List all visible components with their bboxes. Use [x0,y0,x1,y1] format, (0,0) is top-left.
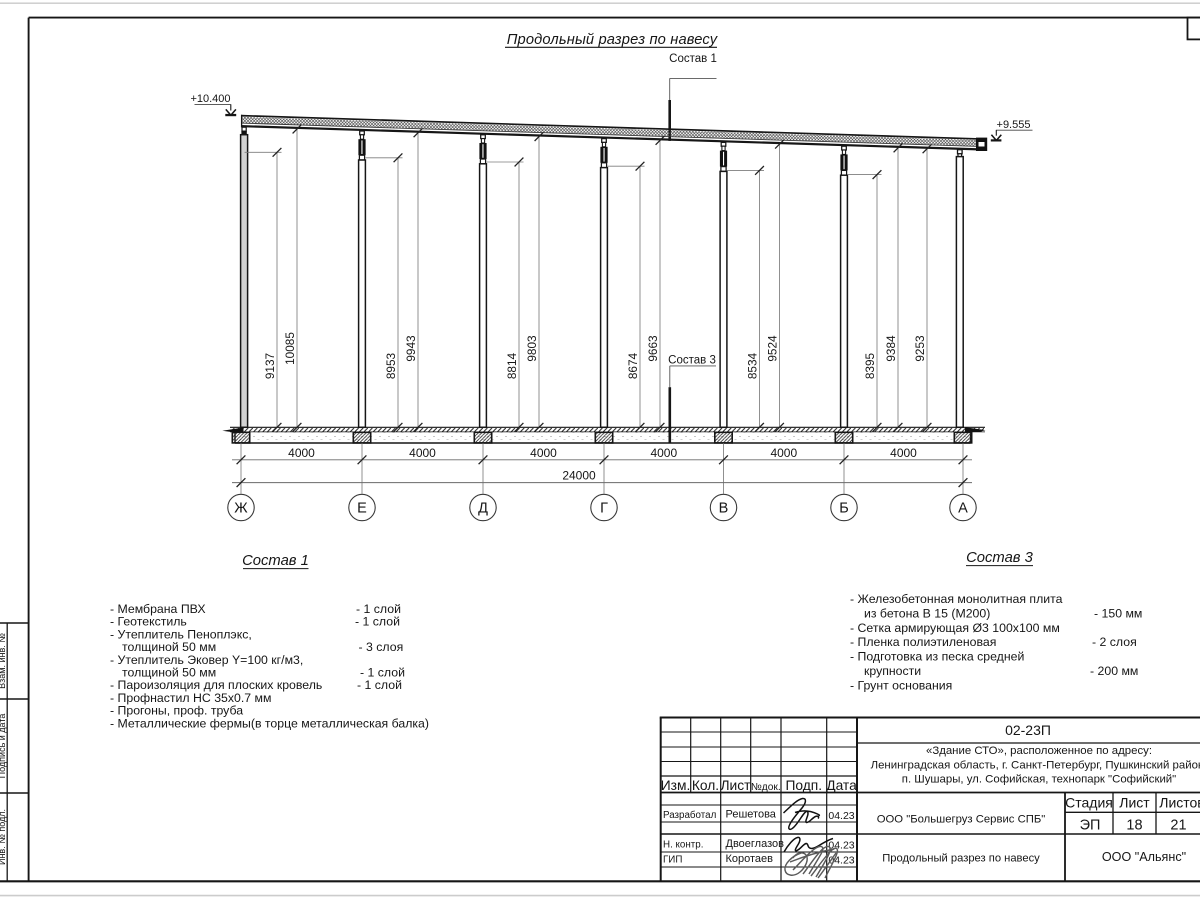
svg-text:18: 18 [1126,818,1142,834]
svg-text:04.23: 04.23 [828,810,854,822]
svg-text:Состав 1: Состав 1 [242,553,309,569]
svg-text:Инв. № подл.: Инв. № подл. [0,809,7,865]
svg-text:- 1 слой: - 1 слой [357,678,402,692]
svg-text:8814: 8814 [505,352,519,379]
svg-text:Взам. инв. №: Взам. инв. № [0,633,7,689]
svg-text:8534: 8534 [745,352,759,379]
svg-text:4000: 4000 [409,446,436,460]
svg-text:- Грунт основания: - Грунт основания [850,678,952,692]
svg-text:Продольный разрез по навесу: Продольный разрез по навесу [507,32,719,48]
svg-text:Ленинградская область, г. Санк: Ленинградская область, г. Санкт-Петербур… [871,760,1200,772]
svg-text:4000: 4000 [288,446,315,460]
svg-text:4000: 4000 [650,446,677,460]
svg-text:Двоеглазов: Двоеглазов [726,838,785,850]
svg-text:9137: 9137 [263,353,277,379]
svg-text:4000: 4000 [530,446,557,460]
svg-text:- 3 слоя: - 3 слоя [359,640,404,654]
svg-text:- Пленка полиэтиленовая: - Пленка полиэтиленовая [850,635,996,649]
svg-text:- 150 мм: - 150 мм [1094,606,1142,620]
svg-text:- Сетка армирующая Ø3 100х100: - Сетка армирующая Ø3 100х100 мм [850,621,1060,635]
svg-text:- 2 слоя: - 2 слоя [1092,635,1137,649]
svg-text:ООО "Большегруз Сервис СПБ": ООО "Большегруз Сервис СПБ" [877,814,1046,826]
svg-text:9253: 9253 [913,335,927,362]
svg-text:Изм.: Изм. [661,778,691,793]
svg-text:- 1 слой: - 1 слой [355,615,400,629]
svg-text:24000: 24000 [562,469,596,483]
svg-text:В: В [719,501,729,517]
svg-text:Ж: Ж [234,501,248,517]
svg-text:Подп.: Подп. [785,778,822,793]
svg-text:Разработал: Разработал [663,810,717,821]
svg-text:Н. контр.: Н. контр. [663,840,703,851]
svg-text:8674: 8674 [626,352,640,379]
svg-text:Состав 3: Состав 3 [668,355,716,367]
svg-text:ЭП: ЭП [1080,818,1101,834]
svg-text:Состав 3: Состав 3 [966,550,1034,566]
svg-text:Коротаев: Коротаев [726,853,774,865]
svg-text:+10.400: +10.400 [190,93,230,105]
svg-text:Е: Е [357,501,367,517]
svg-text:ООО "Альянс": ООО "Альянс" [1102,850,1186,864]
svg-text:8953: 8953 [384,352,398,379]
svg-text:Г: Г [600,501,608,517]
svg-text:4000: 4000 [890,446,917,460]
svg-text:+9.555: +9.555 [997,119,1031,131]
svg-text:- Металлические фермы(в торце: - Металлические фермы(в торце металличес… [110,716,429,730]
svg-text:Стадия: Стадия [1065,795,1113,811]
svg-text:ГИП: ГИП [663,855,682,866]
svg-text:А: А [958,501,968,517]
svg-text:9803: 9803 [525,335,539,362]
svg-text:Решетова: Решетова [726,809,777,821]
svg-text:«Здание СТО», расположенное по: «Здание СТО», расположенное по адресу: [926,745,1152,757]
svg-text:02-23П: 02-23П [1005,722,1051,738]
svg-text:Лист: Лист [721,778,752,793]
svg-text:9943: 9943 [404,335,418,362]
svg-text:10085: 10085 [283,332,297,365]
svg-text:8395: 8395 [863,352,877,379]
svg-text:- 200 мм: - 200 мм [1090,664,1138,678]
svg-text:9663: 9663 [646,335,660,362]
svg-text:Листов: Листов [1159,795,1200,811]
svg-text:9524: 9524 [765,335,779,362]
svg-text:Б: Б [839,501,849,517]
svg-text:из бетона В 15 (М200): из бетона В 15 (М200) [864,606,990,620]
svg-text:п. Шушары, ул. Софийская, техн: п. Шушары, ул. Софийская, технопарк "Соф… [902,774,1176,786]
svg-text:9384: 9384 [884,335,898,362]
svg-text:Состав 1: Состав 1 [669,53,717,65]
svg-text:Подпись и дата: Подпись и дата [0,714,7,779]
svg-text:- Железобетонная монолитная п: - Железобетонная монолитная плита [850,592,1063,606]
svg-text:4000: 4000 [770,446,797,460]
svg-text:крупности: крупности [864,664,921,678]
svg-text:- Подготовка из песка средней: - Подготовка из песка средней [850,650,1024,664]
svg-text:Лист: Лист [1119,795,1150,811]
svg-text:Дата: Дата [826,778,857,793]
svg-text:Продольный разрез по навесу: Продольный разрез по навесу [882,853,1040,865]
svg-text:Д: Д [478,501,488,517]
svg-text:Кол.: Кол. [692,778,719,793]
svg-text:№док.: №док. [751,782,781,793]
svg-text:21: 21 [1170,818,1186,834]
